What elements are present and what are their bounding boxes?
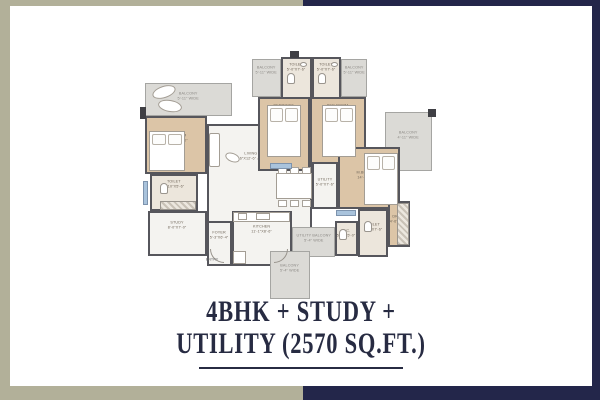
wardrobe-icon [160,201,196,210]
pillow-icon [382,156,395,170]
window-icon [270,163,292,169]
fridge-icon [233,251,246,264]
column-marker [290,51,299,58]
room-utility: UTILITY5'-0"X7'-6" [312,162,338,209]
floorplan: ENTRY BALCONY5'-11" WIDETOILET5'-0"X7'-6… [140,51,436,303]
plan-title-line1: 4BHK + STUDY + [83,296,520,328]
washbasin-icon [300,62,307,67]
toilet-fixture-icon [339,229,347,240]
room-label: BALCONY5'-11" WIDE [343,66,364,85]
dining-table [276,173,312,199]
room-label: BALCONY4'-11" WIDE [398,131,419,155]
chair-icon [302,167,311,174]
toilet-fixture-icon [287,73,295,84]
window-icon [143,181,148,205]
toilet-fixture-icon [160,183,168,194]
pillow-icon [325,108,338,122]
room-toilet-bottom: TOILET5'-0"X7'-6" [358,209,388,257]
pillow-icon [367,156,380,170]
title-underline [199,367,403,369]
column-marker [140,107,146,119]
toilet-fixture-icon [364,221,372,232]
room-study: STUDY8'-0"X7'-0" [148,211,207,256]
toilet-fixture-icon [318,73,326,84]
pillow-icon [340,108,353,122]
room-label: STUDY8'-0"X7'-0" [168,221,187,241]
chair-icon [290,200,299,207]
room-label: UTILITY BALCONY5'-4" WIDE [296,234,330,248]
bed-icon [267,105,301,157]
room-label: BALCONY5'-4" WIDE [280,264,299,285]
bed-icon [364,153,398,205]
room-balcony-top-left: BALCONY5'-11" WIDE [252,59,281,97]
washbasin-icon [331,62,338,67]
entry-label: ENTRY [200,258,225,262]
room-toilet-top-left: TOILET5'-0"X7'-6" [281,57,312,99]
pillow-icon [270,108,283,122]
bed-icon [322,105,356,157]
stove-icon [256,213,270,220]
window-icon [336,210,356,216]
pillow-icon [152,134,166,145]
room-label: UTILITY5'-0"X7'-6" [316,178,335,196]
room-label: KITCHEN11'-1"X8'-6" [252,225,273,249]
sofa-icon [209,133,220,167]
pillow-icon [285,108,298,122]
wardrobe-icon [397,203,409,245]
bed-icon [149,131,185,171]
kitchen-sink-icon [238,213,247,220]
chair-icon [302,200,311,207]
page-frame: ENTRY BALCONY5'-11" WIDETOILET5'-0"X7'-6… [0,0,600,400]
pillow-icon [168,134,182,145]
chair-icon [278,200,287,207]
plan-title: 4BHK + STUDY + UTILITY (2570 SQ.FT.) [83,296,520,369]
room-balcony-top-right: BALCONY5'-11" WIDE [341,59,367,97]
plan-card: ENTRY BALCONY5'-11" WIDETOILET5'-0"X7'-6… [10,6,592,386]
plan-title-line2: UTILITY (2570 SQ.FT.) [83,328,520,360]
column-marker [428,109,436,117]
room-label: BALCONY5'-11" WIDE [256,66,277,85]
